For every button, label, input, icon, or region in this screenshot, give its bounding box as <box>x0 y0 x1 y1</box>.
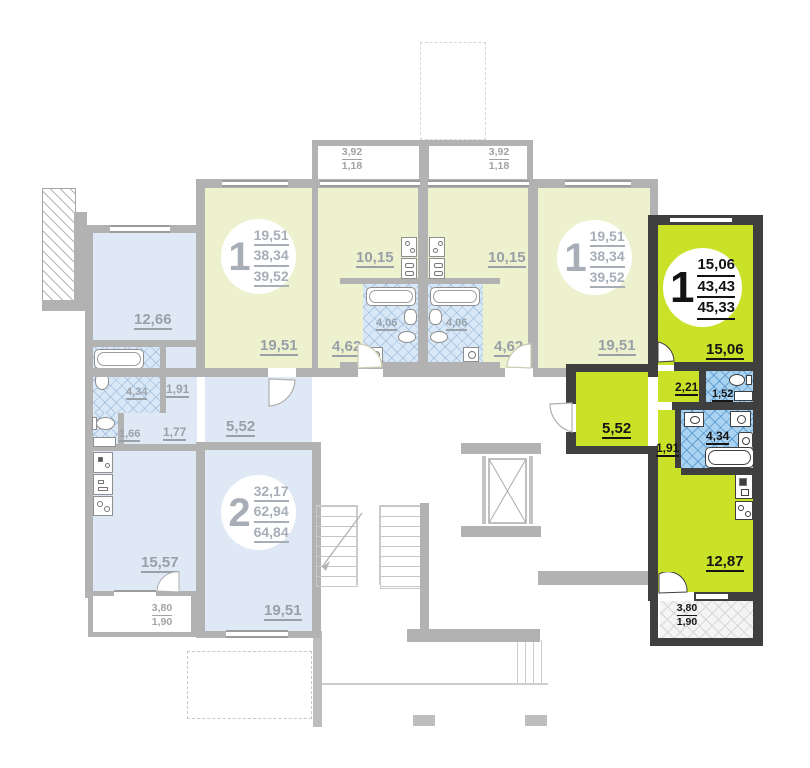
hl-wall <box>672 402 753 410</box>
upper-outline-dashed <box>420 42 486 140</box>
balcony-wall <box>191 595 196 637</box>
balcony-area-label: 3,921,18 <box>334 146 370 173</box>
wc-area-label: 1,66 <box>119 428 140 441</box>
hl-wall <box>674 362 763 371</box>
door-arc-icon <box>658 572 688 594</box>
bath-area-label: 4,06 <box>446 317 467 330</box>
toilet-tank <box>92 417 97 430</box>
corridor-wall <box>407 629 540 642</box>
corridor-wall <box>296 368 358 377</box>
room-area-label: 19,51 <box>598 337 636 354</box>
corridor-wall <box>420 503 429 629</box>
elevator-wall <box>461 526 541 537</box>
room-area-label: 19,51 <box>264 602 302 619</box>
wall <box>197 442 321 450</box>
bathtub-icon <box>705 447 754 468</box>
corridor-wall <box>533 368 566 377</box>
hall-area-label: 5,52 <box>226 418 255 435</box>
bath-area-label: 4,06 <box>376 317 397 330</box>
stove-icon <box>429 237 445 257</box>
toilet-icon <box>430 331 448 343</box>
unit-badge-1room-right[interactable]: 1 19,51 38,34 39,52 <box>557 220 632 295</box>
balcony-area-label: 3,921,18 <box>481 146 517 173</box>
stove-icon <box>93 452 113 473</box>
bath-area-label: 4,34 <box>126 386 147 399</box>
unit-badge-2room[interactable]: 2 32,17 62,94 64,84 <box>221 475 296 550</box>
wall <box>312 188 318 368</box>
counter-icon <box>429 258 445 279</box>
sink-icon <box>404 309 417 325</box>
hl-wall <box>675 410 681 468</box>
balcony-area-label: 3,801,90 <box>146 602 178 629</box>
lower-stub <box>413 715 435 726</box>
kitchen-sink-icon <box>735 501 753 520</box>
window <box>428 180 529 187</box>
lower-line <box>322 683 548 685</box>
elevator-icon <box>488 458 527 524</box>
shelf <box>93 437 116 447</box>
stairs-direction-arrow <box>316 505 422 589</box>
window <box>565 180 631 187</box>
corridor-wall <box>85 368 268 377</box>
wall <box>196 442 205 638</box>
elevator-rail <box>529 456 533 524</box>
counter-icon <box>401 258 417 279</box>
elevator-rail <box>482 456 486 524</box>
lower-stub <box>525 715 547 726</box>
kitchen-area-label: 12,87 <box>706 553 744 570</box>
stove-icon <box>401 237 417 257</box>
hl-wall <box>699 371 706 402</box>
bathtub-icon <box>366 287 416 306</box>
balcony-area-label: 3,801,90 <box>670 602 704 629</box>
hl-balcony-wall <box>650 638 763 646</box>
wall <box>42 300 74 311</box>
hall-area-label: 1,91 <box>166 383 189 397</box>
wall <box>85 225 93 595</box>
wall <box>340 278 500 284</box>
hl-wall <box>566 364 576 404</box>
corridor-wall <box>383 368 505 377</box>
room-area-label: 15,06 <box>706 341 744 358</box>
window <box>670 216 732 224</box>
kitchen-area-label: 10,15 <box>356 249 394 266</box>
wall <box>196 188 205 377</box>
hall-area-label: 1,77 <box>163 426 186 440</box>
unit-badge-highlighted[interactable]: 1 15,06 43,43 45,33 <box>663 248 742 327</box>
window <box>222 180 288 187</box>
hl-wall <box>566 364 658 372</box>
kitchen-area-label: 15,57 <box>141 554 179 571</box>
elevator-wall <box>461 443 541 454</box>
window <box>320 180 420 187</box>
toilet-tank <box>746 375 752 385</box>
washer-icon <box>463 347 479 362</box>
corridor-wall <box>538 571 658 585</box>
sink-icon <box>684 412 704 427</box>
bath-area-label: 4,34 <box>706 430 729 444</box>
hl-wall <box>753 215 763 645</box>
hl-wall <box>648 446 658 592</box>
wall <box>650 179 658 219</box>
window <box>696 592 728 601</box>
toilet-icon <box>729 374 745 386</box>
window <box>226 630 288 638</box>
door-arc-icon <box>268 378 296 408</box>
oven-icon <box>93 474 113 495</box>
door-arc-icon <box>357 342 383 369</box>
hall-area-label: 2,21 <box>675 381 698 395</box>
window <box>110 225 170 233</box>
stove-icon <box>735 474 753 499</box>
lower-wall <box>313 631 322 727</box>
door-arc-icon <box>156 570 180 593</box>
kitchen-sink-icon <box>93 496 113 516</box>
door-arc-icon <box>657 340 675 363</box>
wall <box>528 188 538 368</box>
door-arc-icon <box>549 402 573 434</box>
hl-hall-1-91 <box>658 410 675 468</box>
room-area-label: 12,66 <box>134 311 172 328</box>
door-arc-icon <box>506 342 532 369</box>
lower-ticks <box>517 640 544 683</box>
bathtub-icon <box>94 349 144 369</box>
sink-icon <box>429 309 442 325</box>
hall-area-label: 1,91 <box>656 442 679 456</box>
unit-badge-1room-left[interactable]: 1 19,51 38,34 39,52 <box>221 219 296 294</box>
hall-area-label: 5,52 <box>602 420 631 437</box>
floor-plan: 3,921,18 3,921,18 1 <box>0 0 810 768</box>
kitchen-area-label: 10,15 <box>488 249 526 266</box>
shelf <box>734 391 753 401</box>
hl-wall <box>566 446 658 454</box>
lower-outline-dashed <box>187 651 312 719</box>
toilet-icon <box>398 331 416 343</box>
washer-icon <box>730 411 751 427</box>
hatched-structure <box>42 188 76 302</box>
wall <box>160 347 166 413</box>
room-area-label: 19,51 <box>260 337 298 354</box>
balcony-wall <box>88 595 93 637</box>
toilet-icon <box>96 417 115 430</box>
balcony-wall <box>88 632 196 637</box>
wc-area-label: 1,52 <box>712 388 733 401</box>
wall <box>92 340 196 347</box>
bathtub-icon <box>430 287 480 306</box>
